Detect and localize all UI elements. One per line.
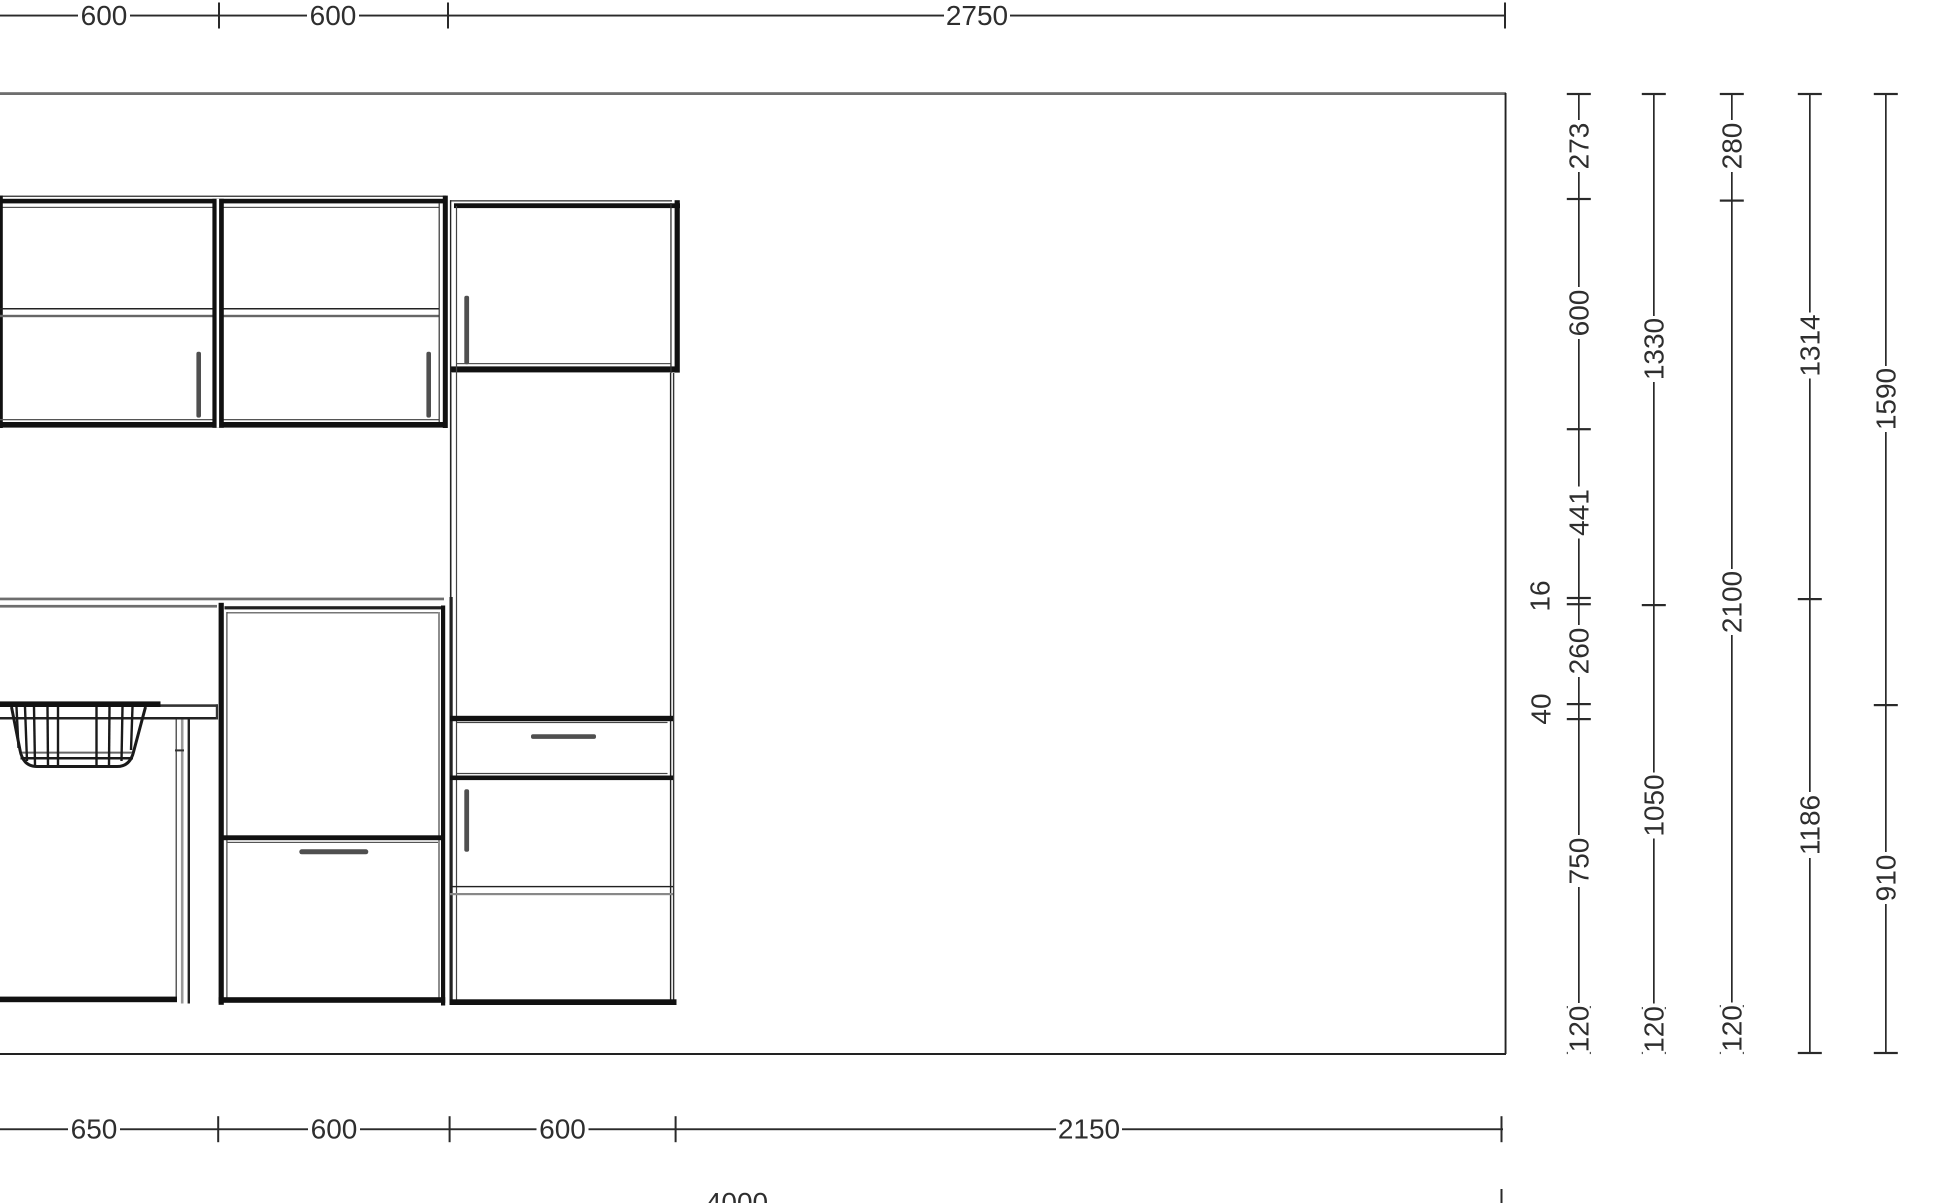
svg-text:16: 16 [1525, 580, 1556, 611]
svg-text:2150: 2150 [1058, 1114, 1120, 1145]
svg-text:750: 750 [1563, 838, 1594, 885]
svg-text:600: 600 [539, 1114, 586, 1145]
svg-text:650: 650 [71, 1114, 118, 1145]
svg-text:273: 273 [1563, 123, 1594, 170]
svg-text:1590: 1590 [1870, 368, 1901, 430]
svg-text:2100: 2100 [1716, 571, 1747, 633]
svg-text:600: 600 [1563, 290, 1594, 337]
svg-text:120: 120 [1638, 1006, 1669, 1053]
svg-text:1186: 1186 [1794, 795, 1825, 855]
svg-text:600: 600 [310, 0, 357, 31]
svg-text:260: 260 [1563, 628, 1594, 675]
svg-text:600: 600 [81, 0, 128, 31]
svg-text:40: 40 [1526, 693, 1557, 724]
svg-text:120: 120 [1716, 1005, 1747, 1052]
svg-text:1330: 1330 [1638, 318, 1669, 380]
svg-text:1314: 1314 [1794, 314, 1825, 376]
svg-text:441: 441 [1563, 489, 1594, 536]
svg-text:600: 600 [311, 1114, 358, 1145]
svg-text:280: 280 [1716, 123, 1747, 170]
svg-text:120: 120 [1563, 1006, 1594, 1053]
svg-text:1050: 1050 [1638, 774, 1669, 836]
svg-text:2750: 2750 [946, 0, 1008, 31]
svg-text:4000: 4000 [706, 1187, 768, 1203]
svg-text:910: 910 [1870, 855, 1901, 902]
